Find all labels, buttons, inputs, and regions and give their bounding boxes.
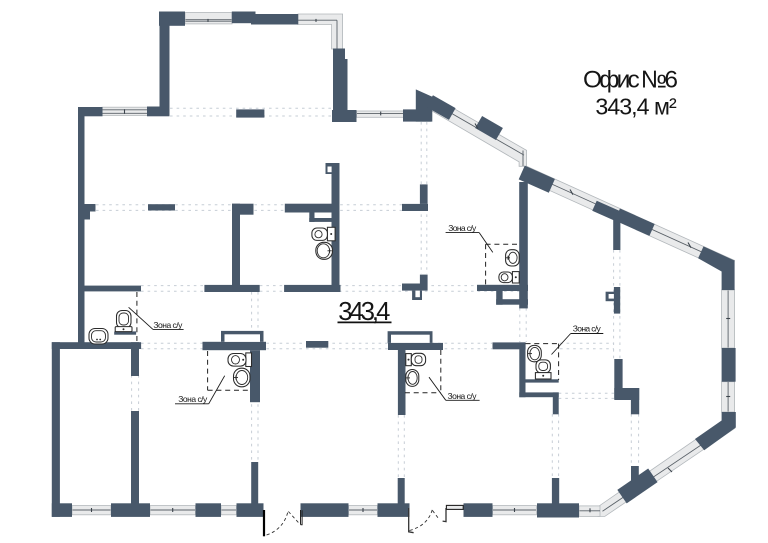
svg-text:Зона с/у: Зона с/у [448, 391, 478, 401]
svg-text:Зона с/у: Зона с/у [573, 324, 602, 334]
svg-text:343,4 м²: 343,4 м² [595, 94, 677, 120]
svg-text:Офис №6: Офис №6 [583, 67, 678, 94]
svg-text:Зона с/у: Зона с/у [448, 223, 477, 233]
svg-text:Зона с/у: Зона с/у [178, 394, 208, 404]
svg-text:Зона с/у: Зона с/у [153, 320, 183, 330]
